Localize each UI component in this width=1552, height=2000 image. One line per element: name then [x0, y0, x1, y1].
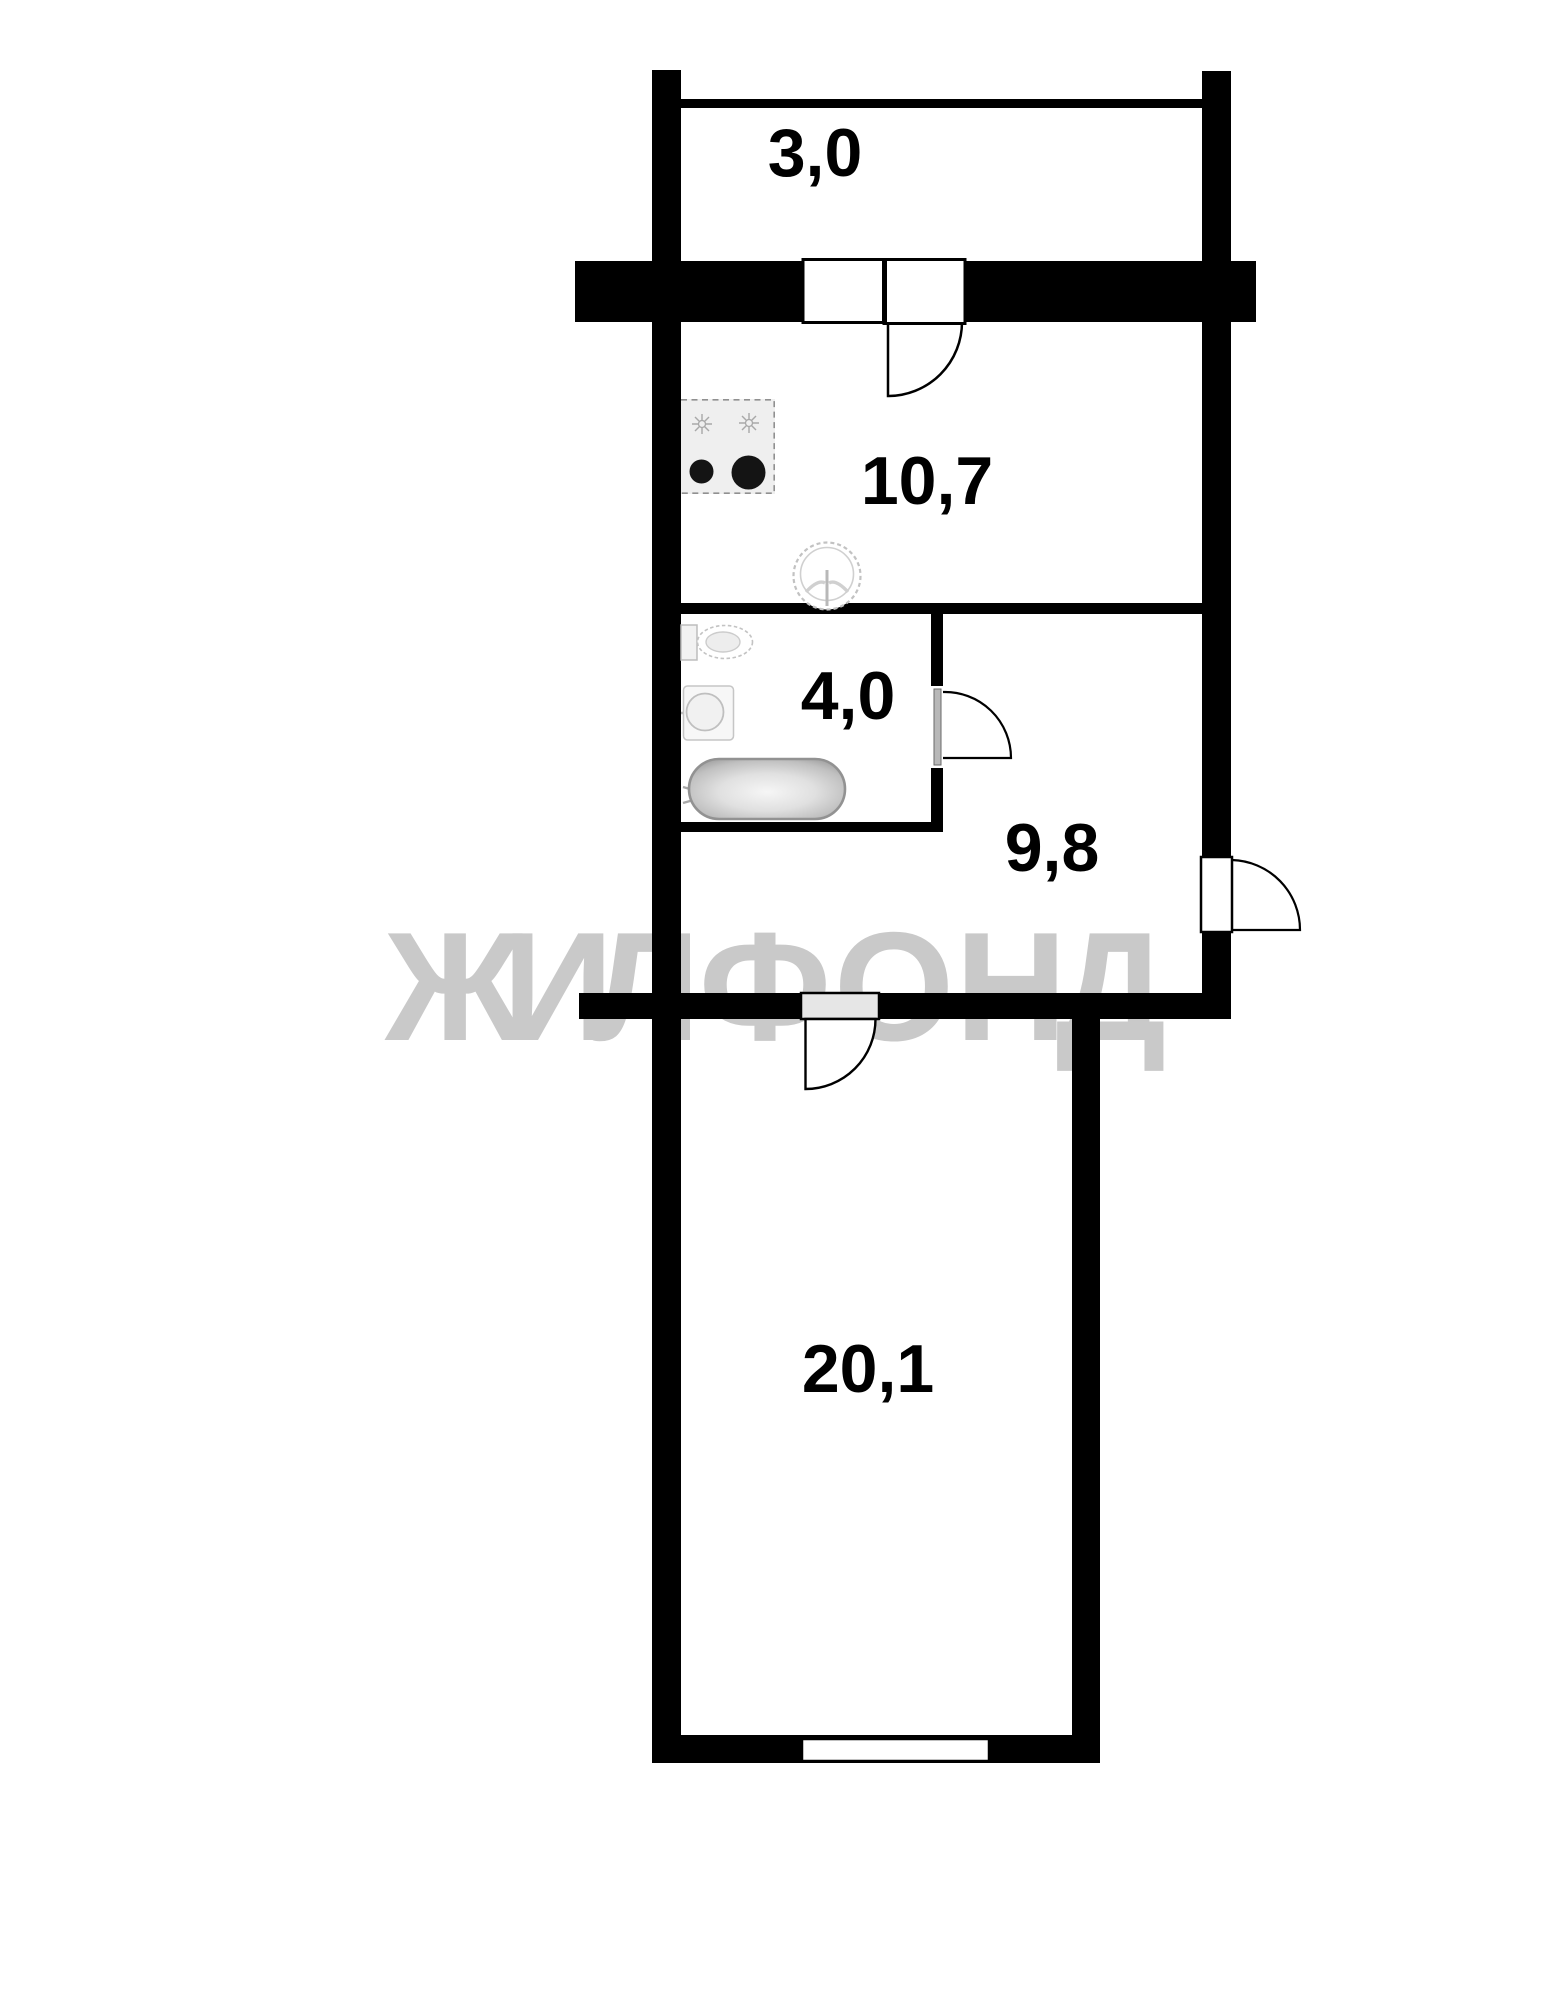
svg-text:4,0: 4,0 — [801, 658, 896, 734]
svg-text:3,0: 3,0 — [768, 115, 863, 191]
svg-text:9,8: 9,8 — [1005, 810, 1100, 886]
svg-text:ЖИЛФОНД: ЖИЛФОНД — [384, 900, 1166, 1073]
svg-text:20,1: 20,1 — [802, 1331, 934, 1407]
svg-text:10,7: 10,7 — [861, 443, 993, 519]
